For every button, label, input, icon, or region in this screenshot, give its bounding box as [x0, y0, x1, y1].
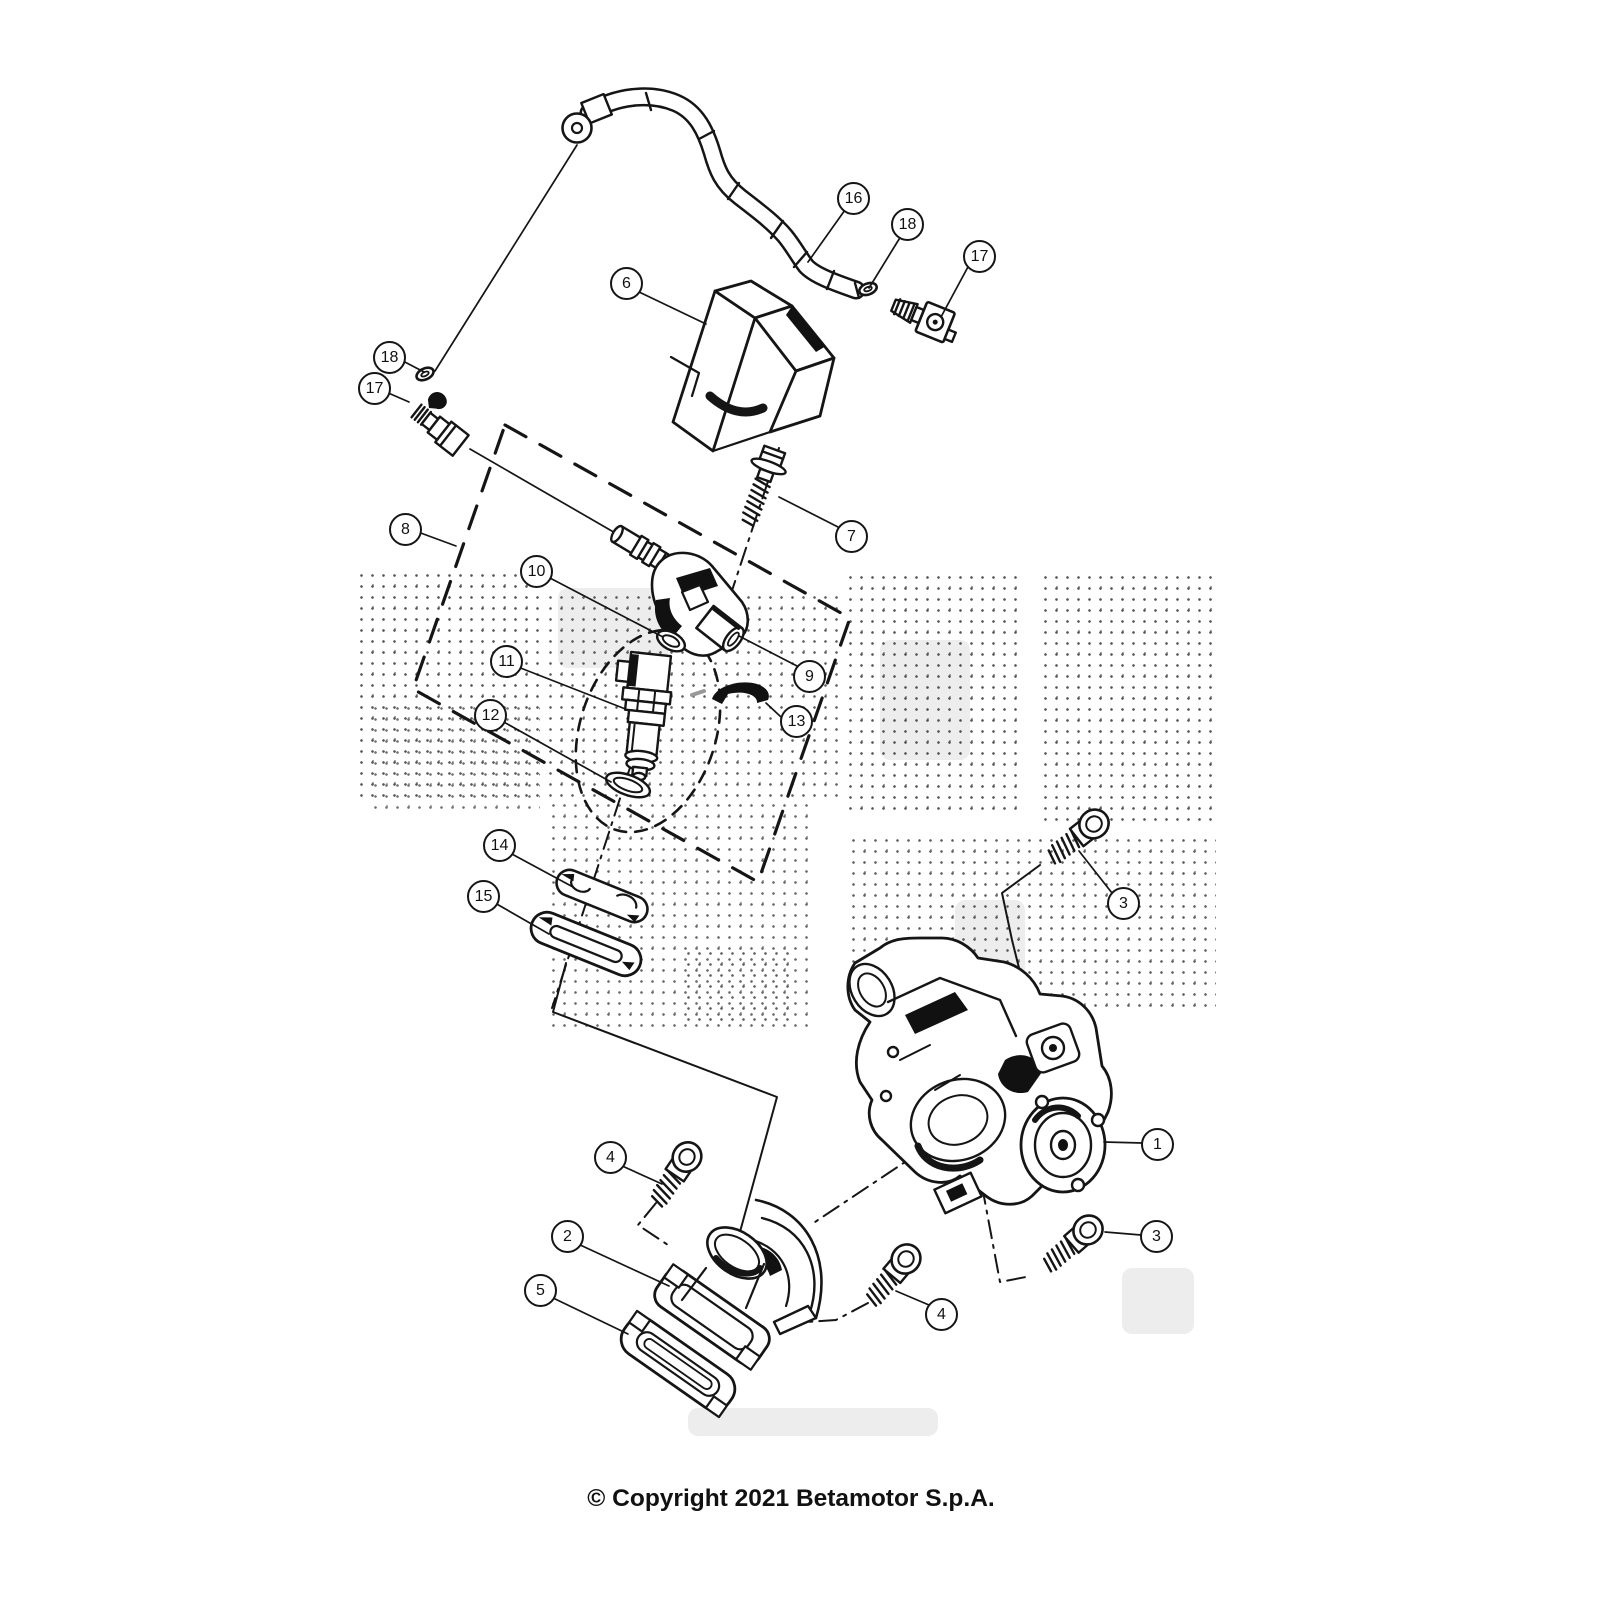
part-retaining-clip — [692, 682, 769, 704]
parts-diagram-page: 16 18 17 6 18 17 8 7 10 9 11 13 12 14 15… — [0, 0, 1600, 1600]
part-fuel-injector — [606, 651, 675, 783]
part-sensor-bracket — [671, 281, 834, 451]
callout-11: 11 — [490, 645, 523, 678]
part-screw-3-bottom — [1037, 1210, 1108, 1277]
callout-17-right: 17 — [963, 240, 996, 273]
callout-15: 15 — [467, 880, 500, 913]
callout-10: 10 — [520, 555, 553, 588]
part-elbow-fitting-left — [409, 388, 479, 456]
part-screw-3-top — [1042, 804, 1114, 869]
diagram-canvas — [0, 0, 1600, 1600]
callout-17-left: 17 — [358, 372, 391, 405]
part-throttle-body — [840, 938, 1111, 1213]
callout-12: 12 — [474, 699, 507, 732]
callout-16: 16 — [837, 182, 870, 215]
callout-4-left: 4 — [594, 1141, 627, 1174]
copyright-text: © Copyright 2021 Betamotor S.p.A. — [587, 1485, 994, 1513]
part-flange-bolt — [731, 443, 792, 530]
callout-6: 6 — [610, 267, 643, 300]
callout-18-right: 18 — [891, 208, 924, 241]
callout-13: 13 — [780, 705, 813, 738]
part-screw-4-left — [645, 1137, 707, 1211]
part-fuel-rail — [608, 523, 748, 656]
part-clamp-plate-upper — [553, 866, 652, 926]
callout-2: 2 — [551, 1220, 584, 1253]
part-fuel-hose — [563, 93, 860, 298]
callout-7: 7 — [835, 520, 868, 553]
callout-14: 14 — [483, 829, 516, 862]
callout-8: 8 — [389, 513, 422, 546]
callout-4-right: 4 — [925, 1298, 958, 1331]
callout-3-top: 3 — [1107, 887, 1140, 920]
callout-18-left: 18 — [373, 341, 406, 374]
callout-1: 1 — [1141, 1128, 1174, 1161]
callout-5: 5 — [524, 1274, 557, 1307]
callout-3-bottom: 3 — [1140, 1220, 1173, 1253]
callout-9: 9 — [793, 660, 826, 693]
